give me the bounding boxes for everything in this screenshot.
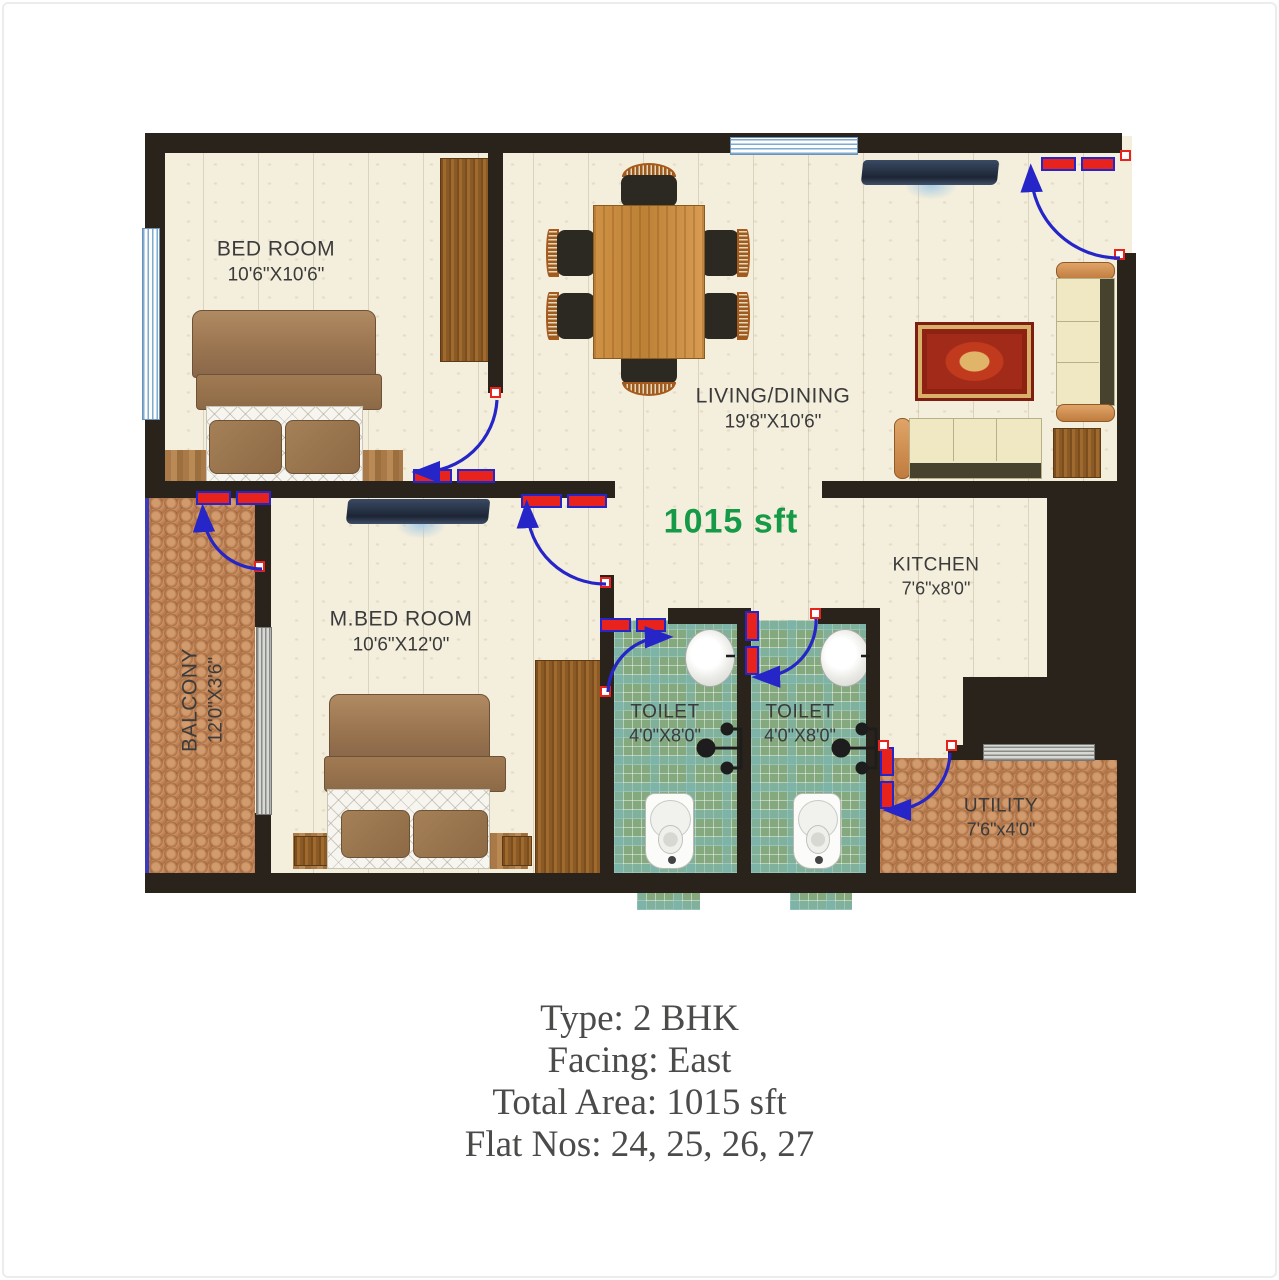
living-tv-glow bbox=[906, 185, 956, 199]
sofa-horizontal bbox=[909, 418, 1042, 479]
room-dims: 10'6"X12'0" bbox=[330, 633, 473, 657]
room-name: KITCHEN bbox=[893, 553, 980, 577]
living-rug bbox=[915, 322, 1034, 401]
dining-chair bbox=[557, 293, 595, 339]
bedroom-bed-duvet bbox=[196, 374, 382, 410]
toilet2-step bbox=[790, 891, 852, 910]
dining-chair bbox=[557, 230, 595, 276]
mbedroom-side-table bbox=[502, 836, 532, 866]
wall bbox=[1117, 253, 1136, 893]
balcony-window bbox=[256, 627, 272, 815]
room-name: TOILET bbox=[764, 700, 836, 724]
caption-block: Type: 2 BHK Facing: East Total Area: 101… bbox=[0, 998, 1279, 1166]
bedroom-window bbox=[142, 228, 160, 420]
door-jamb bbox=[254, 561, 265, 572]
toilet2-wc bbox=[793, 793, 841, 869]
room-dims: 7'6"x8'0" bbox=[893, 578, 980, 601]
toilet1-step bbox=[637, 891, 700, 910]
door-jamb bbox=[878, 740, 889, 751]
mbedroom-pillow bbox=[341, 810, 410, 858]
room-dims: 10'6"X10'6" bbox=[217, 263, 335, 287]
side-table bbox=[1053, 428, 1101, 478]
room-label-kitchen: KITCHEN 7'6"x8'0" bbox=[893, 553, 980, 600]
room-label-balcony: BALCONY 12'0"X3'6" bbox=[177, 648, 228, 752]
mbedroom-bed-duvet bbox=[324, 756, 506, 792]
living-tv bbox=[861, 160, 1000, 185]
door-jamb bbox=[1120, 150, 1131, 161]
wc-ring bbox=[658, 825, 683, 854]
dining-chair bbox=[701, 230, 739, 276]
room-name: BALCONY bbox=[177, 648, 204, 752]
sofa-back-cushion bbox=[910, 463, 1041, 478]
room-label-living: LIVING/DINING 19'8"X10'6" bbox=[696, 383, 851, 434]
dining-chair-back bbox=[737, 292, 750, 340]
room-dims: 4'0"X8'0" bbox=[629, 725, 701, 748]
toilet2-washbasin bbox=[820, 629, 870, 687]
wall bbox=[822, 481, 1136, 498]
bedroom-pillow bbox=[285, 420, 360, 474]
toilet1-washbasin bbox=[685, 629, 735, 687]
wc-flush bbox=[815, 856, 823, 864]
dining-chair bbox=[701, 293, 739, 339]
wall bbox=[488, 153, 503, 393]
toilet1-wc bbox=[645, 793, 694, 869]
utility-door-symbol bbox=[880, 747, 894, 809]
dining-table bbox=[593, 205, 705, 359]
sofa-seam bbox=[996, 419, 997, 461]
caption-total-area: Total Area: 1015 sft bbox=[0, 1082, 1279, 1124]
utility-window bbox=[983, 744, 1095, 761]
balcony-door-symbol bbox=[196, 491, 271, 505]
room-dims: 4'0"X8'0" bbox=[764, 725, 836, 748]
dining-chair bbox=[621, 175, 677, 207]
balcony-railing bbox=[145, 497, 149, 873]
room-label-toilet2: TOILET 4'0"X8'0" bbox=[764, 700, 836, 747]
room-dims: 19'8"X10'6" bbox=[696, 410, 851, 434]
room-label-utility: UTILITY 7'6"x4'0" bbox=[964, 794, 1038, 841]
toilet1-door-symbol bbox=[600, 618, 666, 632]
room-label-mbedroom: M.BED ROOM 10'6"X12'0" bbox=[330, 606, 473, 657]
room-name: M.BED ROOM bbox=[330, 606, 473, 633]
room-name: BED ROOM bbox=[217, 236, 335, 263]
bedroom-door-symbol bbox=[413, 469, 495, 483]
bedroom-bed-headboard bbox=[192, 310, 376, 378]
room-name: LIVING/DINING bbox=[696, 383, 851, 410]
door-jamb bbox=[600, 577, 611, 588]
room-dims: 12'0"X3'6" bbox=[204, 648, 228, 752]
main-entrance-door-symbol bbox=[1041, 157, 1115, 171]
wall bbox=[1093, 745, 1135, 760]
room-name: TOILET bbox=[629, 700, 701, 724]
kitchen-counter bbox=[963, 677, 1047, 745]
caption-flat-nos: Flat Nos: 24, 25, 26, 27 bbox=[0, 1124, 1279, 1166]
sofa-vertical bbox=[1056, 278, 1115, 406]
sofa-seam bbox=[1057, 321, 1099, 322]
wc-flush bbox=[668, 856, 676, 864]
dining-chair-back bbox=[737, 229, 750, 277]
room-label-bedroom: BED ROOM 10'6"X10'6" bbox=[217, 236, 335, 287]
kitchen-counter bbox=[1047, 497, 1117, 745]
mbedroom-bed-headboard bbox=[329, 694, 490, 760]
wall bbox=[255, 813, 271, 873]
wall bbox=[668, 608, 738, 624]
mbedroom-tv-glow bbox=[397, 524, 445, 538]
door-jamb bbox=[600, 686, 611, 697]
sofa-back-cushion bbox=[1100, 279, 1114, 405]
wall bbox=[600, 612, 614, 873]
rug-medallion bbox=[938, 337, 1010, 387]
mbedroom-tv bbox=[346, 499, 491, 524]
room-dims: 7'6"x4'0" bbox=[964, 819, 1038, 842]
door-jamb bbox=[490, 387, 501, 398]
bedroom-wardrobe bbox=[440, 158, 490, 362]
door-jamb bbox=[946, 740, 957, 751]
bedroom-pillow bbox=[209, 420, 282, 474]
caption-facing: Facing: East bbox=[0, 1040, 1279, 1082]
living-window bbox=[730, 137, 858, 155]
floor-plan-image: BED ROOM 10'6"X10'6" LIVING/DINING 19'8"… bbox=[0, 0, 1279, 1280]
caption-type: Type: 2 BHK bbox=[0, 998, 1279, 1040]
mbedroom-wardrobe bbox=[535, 660, 609, 892]
door-jamb bbox=[1114, 249, 1125, 260]
wall bbox=[145, 133, 1122, 153]
room-name: UTILITY bbox=[964, 794, 1038, 818]
mbedroom-pillow bbox=[413, 810, 488, 858]
wc-ring bbox=[806, 825, 830, 854]
sofa-seam bbox=[953, 419, 954, 461]
total-area-label: 1015 sft bbox=[664, 503, 799, 542]
sofa-seam bbox=[1057, 362, 1099, 363]
door-jamb bbox=[810, 608, 821, 619]
mbedroom-door-symbol bbox=[521, 494, 607, 508]
room-label-toilet1: TOILET 4'0"X8'0" bbox=[629, 700, 701, 747]
toilet2-door-symbol bbox=[745, 611, 759, 675]
wall bbox=[145, 873, 1135, 893]
sofa-armrest bbox=[1056, 404, 1115, 422]
